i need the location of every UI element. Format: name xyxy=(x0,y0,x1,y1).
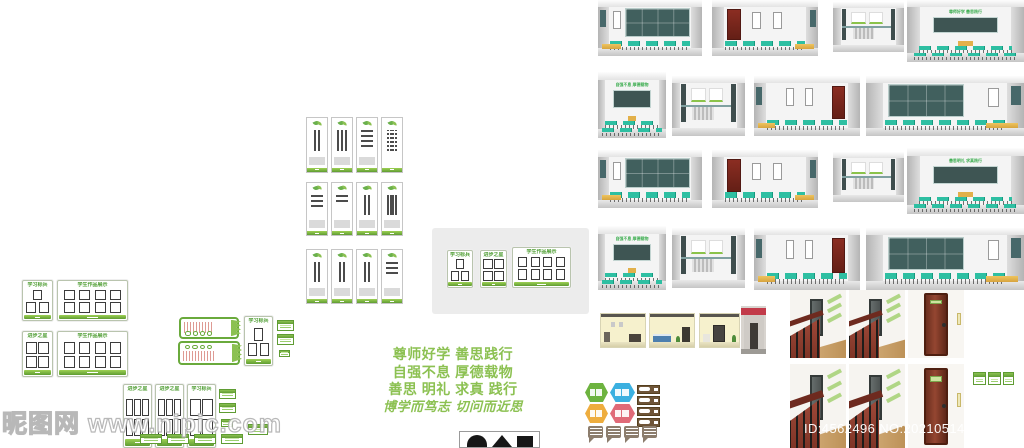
r-accent xyxy=(600,160,606,177)
leaf-logo-icon xyxy=(307,120,327,127)
classroom-thumbnail xyxy=(754,76,860,136)
board-title: 学生作品展示 xyxy=(513,249,570,256)
r-darkframe xyxy=(842,159,847,190)
entrance-door xyxy=(750,323,758,349)
bd-cell xyxy=(110,356,121,368)
r-ceil xyxy=(907,148,1024,156)
bd-cell xyxy=(518,257,527,268)
board-title: 学生作品展示 xyxy=(58,282,127,289)
banner-thumbnail xyxy=(331,182,353,236)
bd-cell xyxy=(461,271,469,281)
decor xyxy=(639,420,650,424)
r-platform xyxy=(795,195,814,200)
bd-cell xyxy=(38,356,49,368)
awning xyxy=(741,308,766,315)
bd-cell xyxy=(95,356,106,368)
wood-sign-bar xyxy=(637,396,660,405)
r-platform xyxy=(602,44,621,49)
bn-mid xyxy=(336,262,349,282)
bd-cell xyxy=(531,257,540,268)
r-accent xyxy=(810,160,816,177)
bd-flex xyxy=(248,328,269,357)
decor xyxy=(615,389,621,397)
dp-sign xyxy=(930,376,941,382)
speech-bubble-sign xyxy=(588,426,603,438)
bd-flex xyxy=(26,290,48,313)
board-title: 学习标兵 xyxy=(23,282,52,289)
vbar xyxy=(364,262,366,282)
decor xyxy=(713,325,725,342)
classroom-thumbnail xyxy=(712,0,818,56)
door-photo xyxy=(908,290,964,358)
bn-foot xyxy=(357,299,377,303)
bd-cell xyxy=(79,302,90,313)
vbar xyxy=(368,195,370,215)
bd-cell xyxy=(79,356,90,368)
scroll-dots xyxy=(185,331,212,335)
bn-blob xyxy=(359,288,375,296)
r-deskrow xyxy=(725,192,806,197)
r-darkframe xyxy=(731,84,735,121)
board-title: 学习标兵 xyxy=(245,318,272,325)
r-winboard xyxy=(625,8,689,37)
r-legs xyxy=(602,133,662,136)
hline xyxy=(361,130,374,132)
r-door xyxy=(832,86,845,120)
r-wainscot xyxy=(842,176,896,178)
vbar xyxy=(364,195,366,215)
classroom-thumbnail xyxy=(598,0,702,56)
r-deskrow xyxy=(767,273,848,279)
decor xyxy=(654,421,658,425)
decor xyxy=(619,322,623,327)
yr-floor xyxy=(601,342,645,347)
decor xyxy=(200,331,205,335)
r-deskrow xyxy=(610,192,689,197)
bd-cell xyxy=(248,343,257,356)
board-title: 进步之星 xyxy=(23,333,52,340)
hexagon-label xyxy=(585,404,608,423)
decor xyxy=(185,345,190,350)
bd-flex xyxy=(451,259,469,281)
bn-mid xyxy=(311,262,324,282)
hline xyxy=(386,267,399,269)
r-deskrow xyxy=(602,280,662,284)
r-accent xyxy=(1011,86,1020,105)
r-board xyxy=(933,166,999,183)
bd-foot xyxy=(59,315,125,319)
bd-cell xyxy=(33,290,42,301)
r-deskrow xyxy=(725,41,806,46)
r-ceil xyxy=(672,228,745,235)
classroom-thumbnail xyxy=(866,228,1024,290)
vbar xyxy=(390,195,392,215)
r-ceil xyxy=(866,76,1024,83)
decor xyxy=(622,410,629,418)
classroom-thumbnail: 善思明礼 求真践行 xyxy=(907,148,1024,214)
mini-board xyxy=(1003,372,1014,385)
r-pic xyxy=(805,240,813,259)
r-floor xyxy=(672,280,745,288)
r-wainscot xyxy=(681,257,737,259)
vbar xyxy=(314,262,316,282)
r-deskrow xyxy=(605,121,659,125)
bd-cell xyxy=(543,257,552,268)
r-darkframe xyxy=(842,9,847,40)
works-board: 学生作品展示 xyxy=(512,247,571,288)
bd-grid xyxy=(483,259,504,281)
bd-cell xyxy=(64,290,75,301)
bd-frow xyxy=(451,271,469,281)
banner-thumbnail xyxy=(306,182,328,236)
decor xyxy=(654,399,658,403)
r-legs xyxy=(767,126,848,130)
photo-id-watermark: ID:4562496 NO:20210514145541643128 xyxy=(804,421,1024,436)
decor xyxy=(611,322,615,327)
banner-thumbnail xyxy=(306,117,328,173)
r-door xyxy=(832,238,845,273)
decor xyxy=(676,336,680,342)
bd-foot xyxy=(448,282,471,286)
hline xyxy=(311,205,324,207)
artwork-shape xyxy=(492,435,512,447)
bd-foot xyxy=(514,282,569,286)
name-plate xyxy=(277,320,294,331)
leaf-logo-icon xyxy=(357,120,377,127)
bd-foot xyxy=(24,315,52,319)
bd-cell xyxy=(39,302,49,313)
r-board xyxy=(613,244,651,261)
decor xyxy=(207,345,212,350)
bd-frow xyxy=(248,328,269,341)
bd-cell xyxy=(483,271,492,281)
works-board: 学生作品展示 xyxy=(57,280,128,321)
bn-foot xyxy=(357,168,377,172)
r-legs xyxy=(914,209,1017,212)
bn-mid xyxy=(336,130,349,151)
bd-cell xyxy=(64,356,75,368)
r-deskrow xyxy=(919,197,1013,201)
speech-bubble-sign xyxy=(606,426,621,438)
r-radiator xyxy=(853,27,874,39)
ground xyxy=(741,349,766,354)
dp-knob xyxy=(942,323,946,327)
r-ceil xyxy=(754,76,860,83)
bd-grid xyxy=(64,342,121,368)
bn-blob xyxy=(309,220,325,228)
r-dispboard xyxy=(869,162,883,174)
r-ceil xyxy=(672,76,745,83)
yr-floor xyxy=(700,342,739,347)
bd-cell xyxy=(64,302,75,313)
bd-cell xyxy=(26,302,36,313)
bd-cell xyxy=(95,290,106,301)
vbar xyxy=(339,262,341,282)
classroom-thumbnail xyxy=(598,150,702,208)
bn-mid xyxy=(361,195,374,215)
name-plate xyxy=(279,350,290,357)
name-plate xyxy=(277,334,294,345)
bd-cell xyxy=(483,259,492,269)
bn-mid xyxy=(361,130,374,151)
bd-grid xyxy=(26,342,50,368)
classroom-thumbnail xyxy=(833,2,904,52)
award-board: 学习标兵 xyxy=(244,316,273,366)
bn-foot xyxy=(307,231,327,235)
bd-cell xyxy=(79,342,90,354)
slogan-line: 尊师好学 善思践行 xyxy=(372,346,534,364)
bd-cell xyxy=(26,342,37,354)
banner-thumbnail xyxy=(381,249,403,304)
r-pic xyxy=(752,12,760,29)
hline xyxy=(311,200,324,202)
slogan-line: 自强不息 厚德载物 xyxy=(372,364,534,382)
mini-board xyxy=(988,372,1001,385)
decor xyxy=(192,345,197,350)
decor xyxy=(185,331,190,335)
hline xyxy=(361,145,374,147)
r-floor xyxy=(833,195,904,202)
st-leaf xyxy=(886,381,901,391)
r-legs xyxy=(602,285,662,288)
mini-board xyxy=(973,372,986,385)
bn-blob xyxy=(359,220,375,228)
hline xyxy=(361,135,374,137)
yr-roof xyxy=(601,314,645,317)
bd-cell xyxy=(110,342,121,354)
st-leaf xyxy=(827,369,842,379)
r-radiator xyxy=(692,258,714,272)
st-leaf xyxy=(827,381,842,391)
r-winboard xyxy=(625,158,689,188)
vbar xyxy=(392,195,394,215)
r-platform xyxy=(758,276,775,282)
hexagon-label xyxy=(585,383,608,402)
bd-cell xyxy=(95,302,106,313)
vbar xyxy=(345,130,347,151)
r-floor xyxy=(833,45,904,52)
bn-mid xyxy=(361,262,374,282)
st-leaf xyxy=(886,313,901,323)
bd-cell xyxy=(531,269,540,280)
bd-cell xyxy=(110,290,121,301)
bd-cell xyxy=(518,269,527,280)
leaf-logo-icon xyxy=(332,120,352,127)
bd-cell xyxy=(494,271,503,281)
banner-thumbnail xyxy=(306,249,328,304)
vbar xyxy=(314,130,316,151)
hline xyxy=(386,262,399,264)
r-accent xyxy=(756,87,762,105)
vbar xyxy=(343,262,345,282)
interior-thumbnail xyxy=(649,313,695,348)
decor xyxy=(622,389,629,397)
bn-foot xyxy=(382,299,402,303)
bn-foot xyxy=(307,168,327,172)
vdash xyxy=(390,130,392,151)
r-ceil xyxy=(712,0,818,7)
artwork-shape xyxy=(517,436,533,447)
r-pic xyxy=(988,88,999,107)
leaf-logo-icon xyxy=(382,252,402,259)
r-darkframe xyxy=(681,84,686,121)
award-board: 进步之星 xyxy=(22,331,53,377)
artwork-shape xyxy=(467,435,487,447)
building-entrance-photo xyxy=(741,306,766,354)
speech-bubble-sign xyxy=(642,426,657,438)
r-floor xyxy=(672,128,745,136)
award-board: 进步之星 xyxy=(480,250,507,288)
classroom-thumbnail: 自强不息 厚德载物 xyxy=(598,72,666,138)
bn-foot xyxy=(332,231,352,235)
vdash xyxy=(392,130,394,151)
banner-thumbnail xyxy=(381,117,403,173)
decor xyxy=(596,410,602,418)
bd-cell xyxy=(260,343,269,356)
vbar xyxy=(395,195,397,215)
bd-cell xyxy=(64,342,75,354)
decor xyxy=(604,332,610,342)
bn-blob xyxy=(359,157,375,165)
r-darkframe xyxy=(681,236,686,273)
r-accent xyxy=(756,239,762,258)
leaf-logo-icon xyxy=(382,120,402,127)
r-ceil xyxy=(866,228,1024,235)
scroll-banner xyxy=(179,317,239,339)
bn-foot xyxy=(357,231,377,235)
bd-cell xyxy=(494,259,503,269)
r-ceil xyxy=(598,0,702,7)
wood-sign-bar xyxy=(637,407,660,416)
stairwell-photo xyxy=(849,290,905,358)
bd-foot xyxy=(59,370,125,375)
r-winboard xyxy=(888,237,964,270)
r-wainscot xyxy=(842,26,896,28)
decor xyxy=(207,331,212,335)
hline xyxy=(361,140,374,142)
bd-grid xyxy=(518,257,565,280)
works-board: 学生作品展示 xyxy=(57,331,128,377)
r-pic xyxy=(613,162,621,181)
r-deskrow xyxy=(919,46,1013,50)
bn-blob xyxy=(334,157,350,165)
stairwell-photo xyxy=(790,290,846,358)
vbar xyxy=(387,195,389,215)
bd-foot xyxy=(24,370,52,375)
bn-foot xyxy=(332,299,352,303)
r-accent xyxy=(1011,238,1020,258)
decor xyxy=(596,389,602,397)
leaf-logo-icon xyxy=(307,252,327,259)
slogan-line: 博学而笃志 切问而近思 xyxy=(372,399,534,417)
vbar xyxy=(318,130,320,151)
scroll-text-columns xyxy=(183,351,213,361)
leaf-logo-icon xyxy=(382,185,402,192)
leaf-logo-icon xyxy=(357,252,377,259)
r-legs xyxy=(914,57,1017,60)
r-deskrow xyxy=(914,204,1017,208)
bd-cell xyxy=(556,269,565,280)
bd-cell xyxy=(543,269,552,280)
r-accent xyxy=(600,10,606,27)
speech-bubble-sign xyxy=(624,426,639,438)
slogan-line: 善思 明礼 求真 践行 xyxy=(372,381,534,399)
classroom-banner-text: 尊师好学 善思践行 xyxy=(914,9,1017,14)
bd-frow xyxy=(26,290,48,301)
r-dispboard xyxy=(691,88,706,102)
decor xyxy=(654,410,658,414)
r-legs xyxy=(725,47,806,51)
r-ceil xyxy=(598,150,702,157)
decor xyxy=(703,334,710,341)
r-ceil xyxy=(598,72,666,80)
decor xyxy=(200,345,205,350)
bd-cell xyxy=(110,302,121,313)
st-leaf xyxy=(886,369,901,379)
decor xyxy=(653,334,671,341)
r-legs xyxy=(767,279,848,283)
r-radiator xyxy=(853,177,874,189)
r-pic xyxy=(773,12,781,29)
banner-thumbnail xyxy=(356,117,378,173)
banner-thumbnail xyxy=(331,249,353,304)
vbar xyxy=(341,130,343,151)
decor xyxy=(682,327,690,342)
classroom-thumbnail xyxy=(866,76,1024,136)
r-deskrow xyxy=(914,53,1017,57)
banner-thumbnail xyxy=(356,182,378,236)
scroll-banner xyxy=(178,341,240,365)
r-platform xyxy=(986,123,1018,128)
bd-frow xyxy=(26,302,48,313)
st-leaf xyxy=(827,313,842,323)
award-board: 学习标兵 xyxy=(22,280,53,321)
vdash xyxy=(395,130,397,151)
scroll-zigzag-edge xyxy=(231,320,241,337)
bd-cell xyxy=(451,271,459,281)
classroom-thumbnail xyxy=(754,228,860,290)
bd-cell xyxy=(26,356,37,368)
r-darkframe xyxy=(731,236,735,273)
decor xyxy=(639,409,650,413)
bd-cell xyxy=(556,257,565,268)
r-dispboard xyxy=(851,162,865,174)
r-platform xyxy=(986,276,1018,282)
decor xyxy=(193,331,198,335)
site-watermark: 昵图网 www.nipic.com xyxy=(2,404,282,440)
bn-blob xyxy=(384,220,400,228)
board-title: 进步之星 xyxy=(124,386,151,393)
r-ceil xyxy=(907,0,1024,7)
r-dispboard xyxy=(691,240,706,254)
vdash xyxy=(387,130,389,151)
r-pic xyxy=(613,11,621,29)
bn-blob xyxy=(309,157,325,165)
dp-sign xyxy=(930,300,941,305)
r-ceil xyxy=(712,150,818,157)
board-title: 学习标兵 xyxy=(188,386,215,393)
wood-sign-bar xyxy=(637,385,660,394)
decor xyxy=(654,388,658,392)
r-wainscot xyxy=(681,105,737,107)
scroll-zigzag-edge xyxy=(232,344,242,362)
board-title: 进步之星 xyxy=(156,386,183,393)
bn-mid xyxy=(386,262,399,282)
bd-frow xyxy=(451,259,469,269)
st-leaf xyxy=(886,393,901,403)
bn-foot xyxy=(382,168,402,172)
bn-mid xyxy=(311,130,324,151)
